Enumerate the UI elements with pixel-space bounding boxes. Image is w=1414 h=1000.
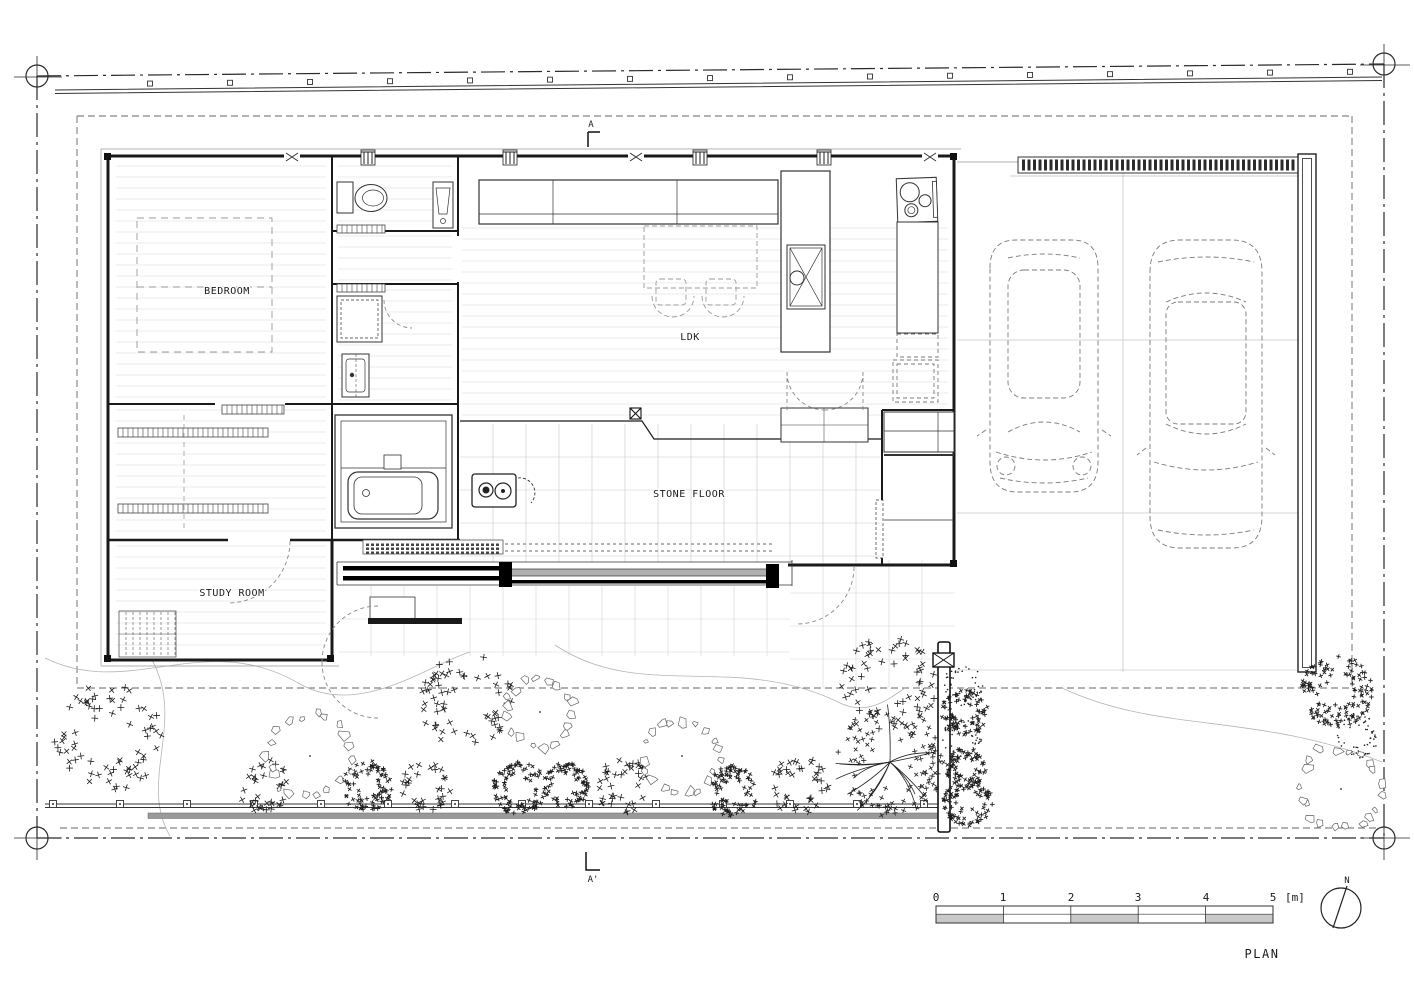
hand-basin-icon — [433, 182, 453, 228]
toilet-icon — [337, 182, 387, 213]
scale-tick-2: 2 — [1068, 891, 1075, 904]
boundary-wall-right — [1298, 154, 1316, 672]
dining-table — [644, 226, 757, 317]
kitchen-side-counter — [897, 222, 938, 333]
section-marker-a-prime: A' — [588, 875, 599, 885]
tree-star — [418, 653, 516, 746]
room-label-ldk: LDK — [680, 332, 700, 343]
north-label: N — [1344, 876, 1349, 886]
fixtures-sanitary — [335, 182, 453, 528]
washing-machine-icon — [337, 296, 382, 342]
scale-tick-5: 5 — [1270, 891, 1277, 904]
kitchen — [479, 171, 938, 442]
mudroom-cabinet — [781, 408, 868, 442]
entrance — [876, 412, 954, 558]
study-porch — [368, 597, 462, 624]
parking-cars — [977, 240, 1275, 548]
scale-bar: 0 1 2 3 4 5 [m] — [933, 891, 1305, 923]
floor-plan-sheet: BEDROOM LDK STONE FLOOR STUDY ROOM A A' … — [0, 0, 1414, 1000]
scale-unit: [m] — [1285, 891, 1305, 904]
tree-star — [237, 756, 293, 815]
tree-star — [51, 684, 166, 794]
tree-star — [399, 760, 455, 813]
scale-tick-0: 0 — [933, 891, 940, 904]
tree-stone — [1297, 744, 1387, 831]
top-retaining-edge — [55, 77, 1382, 94]
scale-tick-1: 1 — [1000, 891, 1007, 904]
wood-stove-icon — [472, 474, 535, 507]
section-marker-a: A — [588, 120, 594, 130]
floor-plan-drawing: BEDROOM LDK STONE FLOOR STUDY ROOM A A' … — [0, 0, 1414, 1000]
cooktop-icon — [896, 177, 938, 222]
north-arrow: N — [1321, 876, 1361, 928]
room-label-study-room: STUDY ROOM — [199, 588, 264, 599]
room-label-bedroom: BEDROOM — [204, 286, 250, 297]
car-sedan — [1137, 240, 1275, 548]
room-label-stone-floor: STONE FLOOR — [653, 489, 725, 500]
tree-dense — [541, 761, 591, 809]
appliances-dashed — [893, 334, 938, 402]
kitchen-island-sink — [781, 171, 830, 352]
section-markers: A A' — [586, 120, 600, 885]
louver-fence — [1010, 157, 1302, 176]
tree-branch — [836, 705, 947, 819]
scale-tick-4: 4 — [1203, 891, 1210, 904]
kitchen-counter — [479, 180, 778, 224]
car-compact — [977, 240, 1111, 492]
tree-star — [837, 635, 938, 732]
bathtub-icon — [335, 415, 452, 528]
study-tatami-hatch — [119, 611, 176, 657]
floor-drain-icon — [630, 408, 641, 419]
tree-dense — [944, 747, 988, 792]
tree-stone — [259, 709, 356, 799]
scale-tick-3: 3 — [1135, 891, 1142, 904]
bed-outline — [137, 218, 272, 352]
vanity-icon — [342, 354, 369, 397]
plan-title: PLAN — [1245, 947, 1280, 961]
